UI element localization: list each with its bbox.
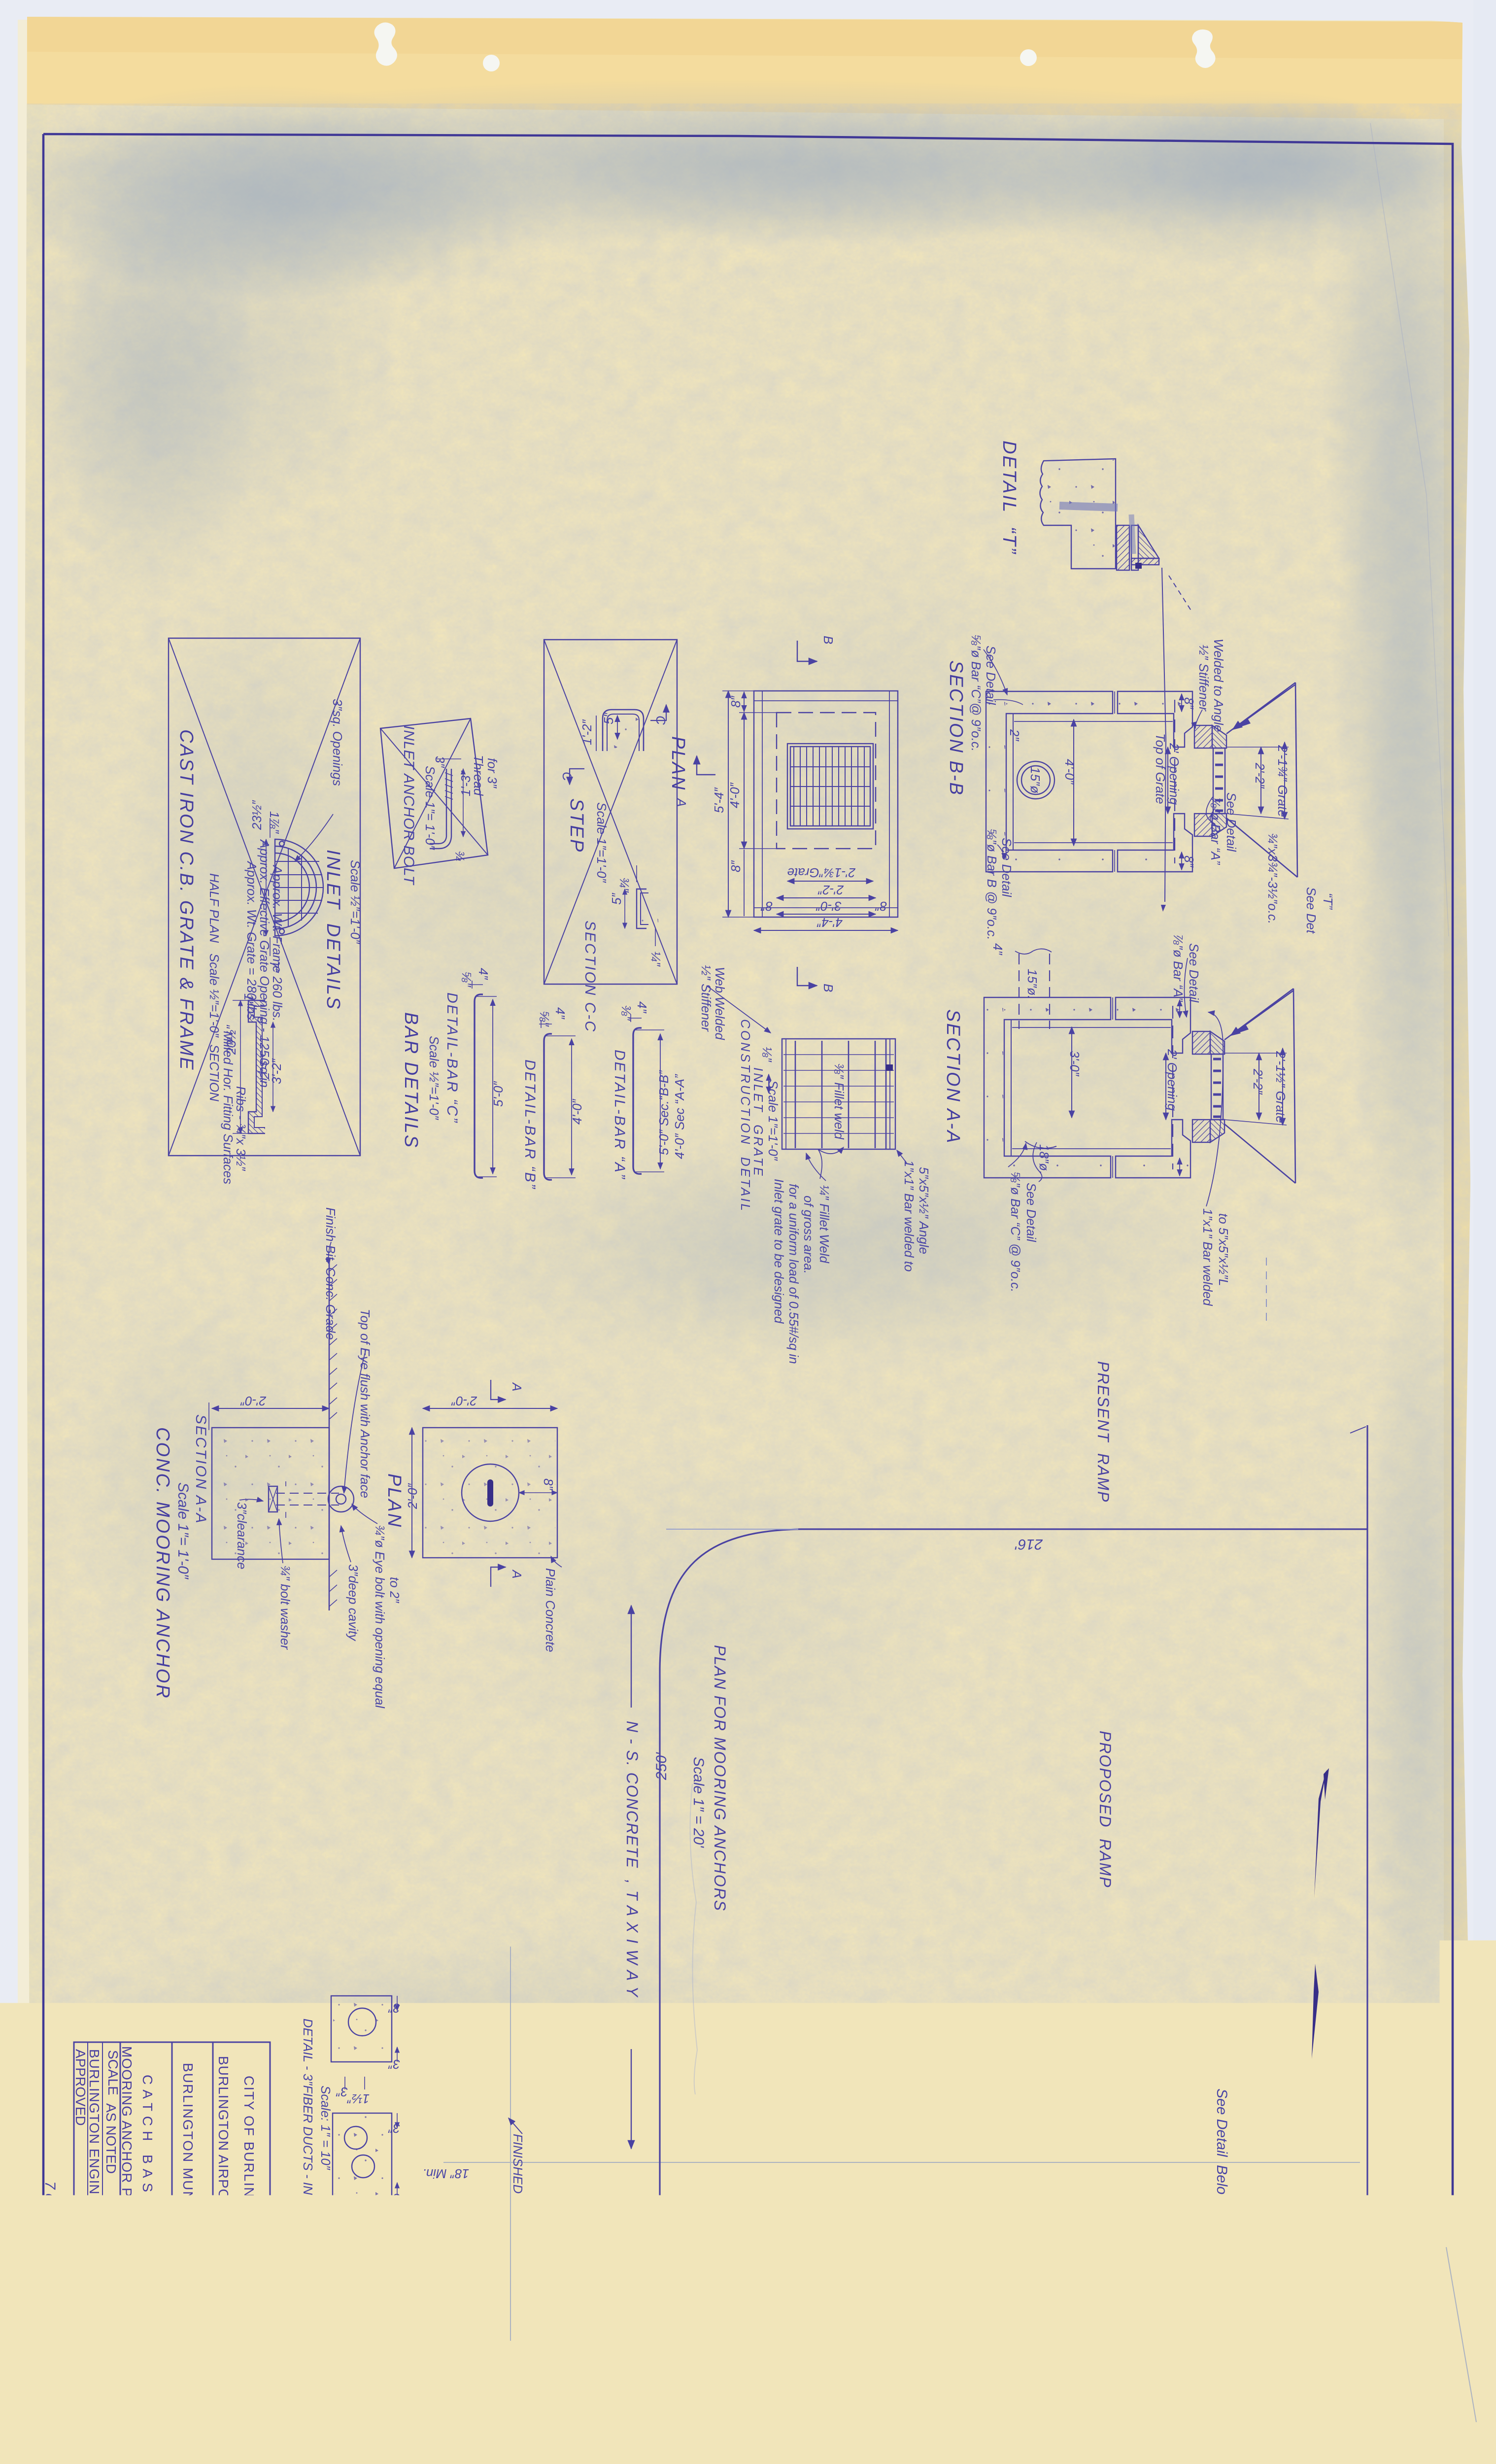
svg-text:1½″: 1½″ [347,2091,370,2106]
svg-text:23½″: 23½″ [224,1025,238,1055]
svg-text:4'-0″: 4'-0″ [727,782,742,808]
svg-text:Scale 1″= 1'-0″: Scale 1″= 1'-0″ [175,1482,191,1580]
svg-text:2'-1½″ Grate: 2'-1½″ Grate [1273,1051,1288,1123]
svg-text:Scale ½″=1'-0″: Scale ½″=1'-0″ [427,1036,442,1120]
svg-text:3'-2″: 3'-2″ [269,1058,284,1084]
svg-text:DETAIL-BAR “B”: DETAIL-BAR “B” [522,1060,538,1190]
svg-text:15″ø: 15″ø [1028,767,1043,793]
svg-text:⅞″ø Bar “A”: ⅞″ø Bar “A” [1171,934,1186,1002]
svg-text:to 5″x5″x½″L: to 5″x5″x½″L [1216,1213,1231,1286]
svg-text:CONSTRUCTION DETAIL: CONSTRUCTION DETAIL [738,1019,753,1213]
svg-text:See Det: See Det [1304,887,1319,934]
svg-text:¾″ø Eye bolt with opening equa: ¾″ø Eye bolt with opening equal [373,1525,387,1709]
svg-text:250': 250' [653,1752,670,1780]
svg-text:7 of 7: 7 of 7 [42,2181,58,2219]
svg-text:3″clearance: 3″clearance [235,1502,249,1569]
svg-text:Scale 1″= 1'-0″: Scale 1″= 1'-0″ [423,766,438,850]
svg-text:CONC. MOORING ANCHOR: CONC. MOORING ANCHOR [152,1427,173,1700]
svg-text:SECTION A-A: SECTION A-A [943,1009,963,1144]
svg-text:3″: 3″ [388,2001,400,2016]
svg-text:½″ Stiffener: ½″ Stiffener [699,965,714,1032]
svg-text:2' Opening: 2' Opening [1165,1049,1180,1111]
svg-text:8″: 8″ [761,899,773,914]
svg-text:8″: 8″ [728,696,743,708]
svg-text:⅝″ø Bar B @ 9″o.c.: ⅝″ø Bar B @ 9″o.c. [985,829,999,940]
svg-text:24': 24' [1287,2234,1305,2249]
svg-text:See Detail: See Detail [1224,792,1239,852]
svg-text:3'-0″: 3'-0″ [816,899,842,914]
svg-text:1'-2″: 1'-2″ [579,719,594,745]
svg-text:See Detail: See Detail [1024,1183,1039,1242]
svg-text:MOORING ANCHOR PLAN & DET.: MOORING ANCHOR PLAN & DET. [119,2046,135,2276]
svg-text:INLET GRATE: INLET GRATE [751,1067,766,1178]
svg-text:⅝″ø Bar “C”@ 9″o.c.: ⅝″ø Bar “C”@ 9″o.c. [969,635,984,752]
svg-text:¼″ Fillet Weld: ¼″ Fillet Weld [817,1185,832,1264]
svg-text:PLAN FOR MOORING ANCHORS: PLAN FOR MOORING ANCHORS [711,1645,729,1912]
svg-text:8″: 8″ [1182,856,1196,867]
svg-text:2'-2″: 2'-2″ [817,883,844,897]
svg-text:3″sq. Openings: 3″sq. Openings [330,699,345,786]
svg-text:C: C [653,716,668,725]
svg-text:3″: 3″ [336,2085,348,2099]
svg-text:⅞″ø Bar “A”: ⅞″ø Bar “A” [1208,797,1223,865]
svg-text:See Detail: See Detail [999,838,1014,897]
svg-text:PROPOSED RAMP: PROPOSED RAMP [1096,1731,1114,1888]
svg-text:2″: 2″ [1007,729,1022,741]
svg-text:for a uniform load of 0.55#/sq: for a uniform load of 0.55#/sq in [786,1184,801,1364]
svg-text:Finish Bit. Conc. Grade: Finish Bit. Conc. Grade [323,1207,338,1340]
svg-text:HALF PLAN Scale ½″=1'-0″ SE: HALF PLAN Scale ½″=1'-0″ SECTION [207,873,222,1101]
svg-text:18″ Min.: 18″ Min. [423,2166,469,2181]
svg-text:INLET ANCHOR BOLT: INLET ANCHOR BOLT [401,725,417,886]
svg-text:B: B [821,636,836,644]
svg-text:7″: 7″ [267,961,282,973]
svg-text:8″: 8″ [1182,697,1196,709]
svg-text:of gross area.: of gross area. [801,1196,816,1274]
svg-text:6': 6' [1347,2236,1357,2251]
svg-text:Scale: 1″ = 10″: Scale: 1″ = 10″ [318,2086,333,2170]
svg-text:24': 24' [1050,2234,1067,2249]
svg-text:DETAIL “T”: DETAIL “T” [999,441,1020,555]
svg-text:3″: 3″ [433,756,447,768]
svg-text:¾″: ¾″ [617,877,632,893]
svg-text:2'-0″: 2'-0″ [240,1394,267,1408]
svg-text:DETAIL-BAR “A”: DETAIL-BAR “A” [612,1050,628,1180]
svg-text:2'-0″: 2'-0″ [451,1394,477,1408]
svg-text:See Detail Below: See Detail Below [1214,2088,1230,2206]
svg-text:Top of Eye flush with Anchor f: Top of Eye flush with Anchor face [358,1309,373,1498]
svg-text:PLAN: PLAN [384,1473,405,1528]
svg-text:8″: 8″ [875,899,887,914]
svg-text:2'-0″: 2'-0″ [405,1483,420,1509]
svg-text:2'-1¾″Grate: 2'-1¾″Grate [787,865,856,880]
svg-text:1″x1″ Bar welded: 1″x1″ Bar welded [1200,1208,1215,1306]
svg-text:23½″: 23½″ [249,800,264,830]
svg-text:SCALE: SCALE [105,2050,121,2095]
svg-text:4'-0″ Sec “A-A”: 4'-0″ Sec “A-A” [672,1074,687,1159]
svg-text:⅜″: ⅜″ [619,1005,634,1021]
svg-text:for 3″: for 3″ [485,758,500,788]
svg-text:⅛″: ⅛″ [760,1047,775,1062]
svg-text:Scale ½″=1'-0″: Scale ½″=1'-0″ [348,860,363,944]
svg-text:8″: 8″ [541,1478,556,1490]
svg-text:Approx. Wt. Frame 260 lbs.: Approx. Wt. Frame 260 lbs. [270,864,285,1021]
svg-text:2'-1¾″ Grate: 2'-1¾″ Grate [1275,745,1290,817]
svg-text:STEP: STEP [566,798,587,853]
svg-text:2' Opening: 2' Opening [1167,743,1182,805]
svg-text:FINISHED SUBGRADE ...: FINISHED SUBGRADE ... [510,2134,525,2283]
svg-text:See Detail: See Detail [984,646,998,705]
svg-text:Scale 1″=1'-0″: Scale 1″=1'-0″ [594,802,609,883]
svg-text:CITY OF BURLINGTON, VERMONT: CITY OF BURLINGTON, VERMONT [241,2076,257,2327]
svg-text:C: C [560,772,575,781]
svg-text:Inlet grate to be designed: Inlet grate to be designed [772,1179,786,1324]
svg-text:BAR DETAILS: BAR DETAILS [401,1012,421,1149]
svg-text:15″ø.: 15″ø. [1025,969,1040,999]
svg-text:A: A [674,797,689,807]
svg-text:DETAIL-BAR “C”: DETAIL-BAR “C” [444,992,460,1124]
svg-text:½″ Stiffener: ½″ Stiffener [1196,645,1211,712]
svg-text:APPROVED: APPROVED [73,2049,88,2126]
svg-text:3″: 3″ [388,2057,400,2072]
svg-text:BURLINGTON ENGINEERING DEPT.: BURLINGTON ENGINEERING DEPT. [87,2049,102,2296]
svg-text:PRESENT RAMP: PRESENT RAMP [1094,1361,1112,1503]
svg-text:¾″ bolt washer: ¾″ bolt washer [278,1565,293,1650]
svg-text:24': 24' [1206,2234,1224,2249]
svg-text:4'-4″: 4'-4″ [816,915,843,930]
svg-text:Web Welded: Web Welded [713,967,727,1040]
svg-text:SECTION A-A: SECTION A-A [193,1414,209,1525]
svg-text:4″: 4″ [553,1007,568,1019]
svg-text:⅝″: ⅝″ [459,972,474,988]
svg-text:5'-0″ Sec.“B-B”: 5'-0″ Sec.“B-B” [656,1070,671,1155]
svg-text:PLAN No.: PLAN No. [72,2319,87,2381]
svg-text:20': 20' [906,2288,920,2306]
svg-text:B: B [821,984,836,992]
svg-text:3'-0″: 3'-0″ [1067,1051,1082,1077]
svg-text:⅝″: ⅝″ [537,1011,552,1027]
svg-text:2'-2″: 2'-2″ [1251,1068,1265,1095]
svg-text:⅝″ø Bar “C” @ 9″o.c.: ⅝″ø Bar “C” @ 9″o.c. [1008,1172,1023,1292]
svg-text:5″x5″x½″ Angle: 5″x5″x½″ Angle [917,1167,931,1254]
svg-text:8″: 8″ [728,860,743,872]
svg-text:Plain Concrete: Plain Concrete [543,1568,558,1652]
svg-text:Scale 1″ = 20': Scale 1″ = 20' [690,1757,707,1848]
svg-text:1'-3″: 1'-3″ [458,770,473,796]
svg-text:JULY 1956: JULY 1956 [102,2334,118,2401]
svg-text:A: A [510,1569,524,1578]
svg-text:N - S. CONCRETE , T A X I W A: N - S. CONCRETE , T A X I W A Y [623,1721,641,1998]
svg-text:¾: ¾ [452,851,467,861]
svg-text:“T”: “T” [1321,893,1335,910]
svg-text:4″: 4″ [476,968,491,980]
svg-text:3″deep cavity: 3″deep cavity [346,1564,361,1642]
svg-text:5'-0″: 5'-0″ [491,1081,506,1107]
svg-text:PLAN: PLAN [668,736,688,791]
svg-text:AS NOTED: AS NOTED [103,2103,119,2174]
svg-text:BURLINGTON AIRPORT COMMISSION: BURLINGTON AIRPORT COMMISSION [216,2056,231,2319]
svg-text:6': 6' [1321,2354,1330,2368]
svg-text:216': 216' [1015,1536,1043,1552]
svg-text:See Detail: See Detail [1187,943,1201,1003]
svg-text:⅜″ Fillet weld: ⅜″ Fillet weld [832,1063,847,1140]
svg-text:Thread: Thread [471,755,486,796]
svg-text:DETAIL - 3″FIBER DUCTS - IN CO: DETAIL - 3″FIBER DUCTS - IN CONCRETE [301,2019,315,2271]
svg-text:4'-0″: 4'-0″ [570,1098,584,1125]
svg-text:48'-0″: 48'-0″ [1201,2346,1234,2361]
svg-text:1″x1″ Bar welded to: 1″x1″ Bar welded to [902,1160,917,1272]
svg-text:24': 24' [1128,2234,1146,2249]
svg-text:4″: 4″ [635,1001,649,1013]
svg-text:SECTION C-C: SECTION C-C [582,921,598,1033]
svg-text:3″: 3″ [388,2191,400,2206]
svg-text:Welded to Angle: Welded to Angle [1211,639,1226,732]
svg-text:BURLINGTON MUNICIPAL AIRPORT: BURLINGTON MUNICIPAL AIRPORT [180,2063,196,2322]
svg-text:1″: 1″ [241,993,256,1005]
svg-text:A: A [510,1382,524,1391]
svg-text:4'-0″: 4'-0″ [1062,759,1077,785]
svg-text:2'x2'x2' Mooring Anchors: 2'x2'x2' Mooring Anchors [1012,2297,1154,2312]
svg-text:5'-4″: 5'-4″ [712,787,726,813]
svg-text:CATCH BASIN DETAIL: CATCH BASIN DETAIL [140,2075,155,2306]
svg-text:FILE No.: FILE No. [88,2318,103,2372]
svg-text:SECTION B-B: SECTION B-B [946,660,966,796]
svg-text:2'-2″: 2'-2″ [1253,762,1267,789]
svg-text:5″: 5″ [601,713,616,724]
svg-text:Scale 1″=1'-0″: Scale 1″=1'-0″ [766,1080,781,1161]
svg-text:4″: 4″ [990,943,1005,955]
svg-text:Top of Grate: Top of Grate [1153,733,1168,804]
svg-text:1⅞″: 1⅞″ [267,811,282,834]
svg-text:48'-0″: 48'-0″ [1044,2346,1077,2361]
svg-text:INLET DETAILS: INLET DETAILS [323,850,343,1010]
svg-text:¾″x3¾″-3½″o.c.: ¾″x3¾″-3½″o.c. [1265,833,1280,924]
svg-text:5″: 5″ [609,893,624,905]
svg-text:Ribs - ¾″x 3½″: Ribs - ¾″x 3½″ [234,1086,248,1171]
svg-text:3″: 3″ [388,2121,400,2136]
svg-text:to 2″: to 2″ [387,1577,402,1603]
svg-text:24': 24' [971,2234,988,2249]
svg-text:¼″: ¼″ [648,951,663,967]
svg-text:CAST IRON C.B. GRATE & FRAME: CAST IRON C.B. GRATE & FRAME [176,729,197,1071]
